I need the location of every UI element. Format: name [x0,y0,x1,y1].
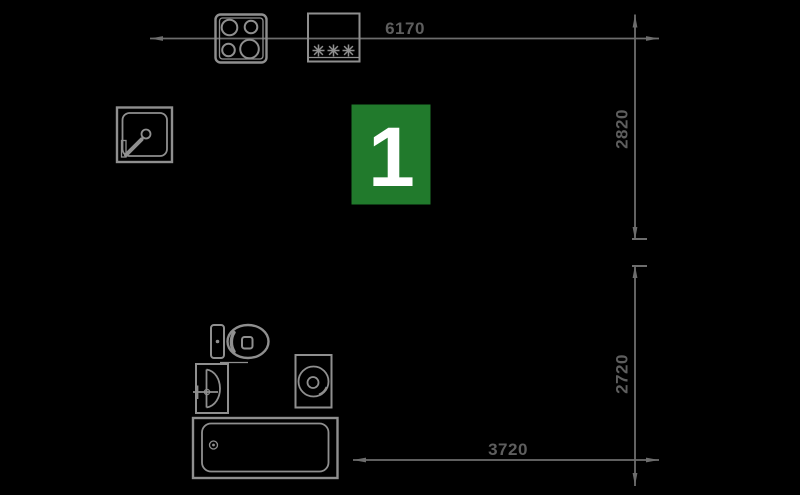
dimension-right-upper-label: 2820 [613,109,632,149]
unit-number: 1 [368,110,415,204]
dimension-bottom: 3720 [353,440,659,462]
unit-marker[interactable]: 1 [352,105,431,205]
dimension-top: 6170 [150,19,659,41]
arrow-up-icon [633,15,638,28]
dimension-right-lower: 2720 [613,265,648,486]
shower-icon [117,108,172,163]
arrow-left-icon [150,36,163,41]
asterisk-icon [313,45,325,57]
washbasin-icon [193,364,228,413]
asterisk-icon [343,45,355,57]
dimension-top-label: 6170 [385,19,425,38]
floor-plan: 6170 2820 2720 3720 [0,0,800,495]
bathtub-icon [193,418,338,478]
dimension-right-lower-label: 2720 [613,354,632,394]
arrow-left-icon [353,458,366,463]
asterisk-icon [328,45,340,57]
arrow-down-icon [633,473,638,486]
floor-plan-canvas: 6170 2820 2720 3720 [0,0,800,495]
dimension-bottom-label: 3720 [488,440,528,459]
arrow-right-icon [646,458,659,463]
dimension-right-upper: 2820 [613,15,648,241]
toilet-icon [211,325,269,363]
asterisk-appliance-icon [308,14,360,62]
washing-machine-icon [296,355,332,408]
arrow-right-icon [646,36,659,41]
